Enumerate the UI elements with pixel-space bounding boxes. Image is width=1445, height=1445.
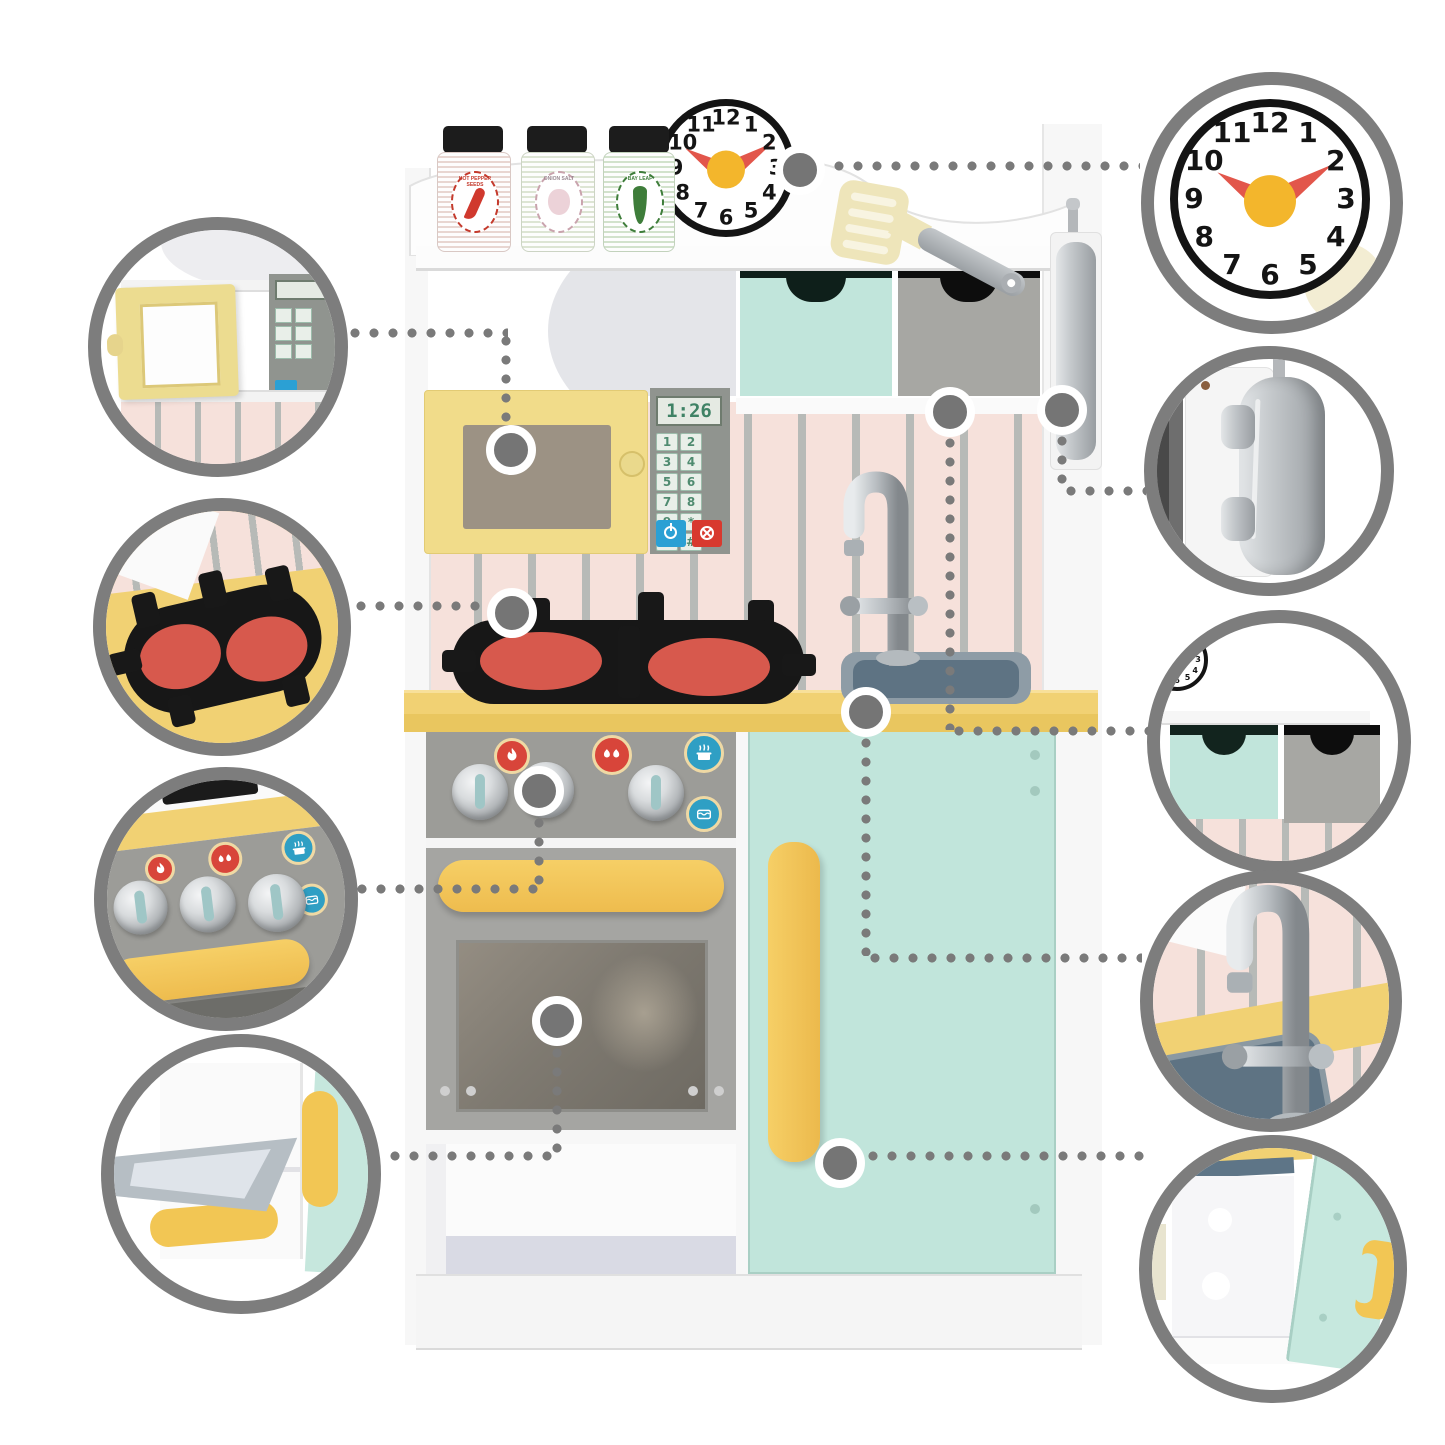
burner-left bbox=[480, 632, 602, 690]
fridge-handle-sliver bbox=[302, 1091, 338, 1207]
callout-play-clock: 121234567891011 bbox=[1141, 72, 1403, 334]
microwave-key-4: 4 bbox=[680, 453, 702, 471]
connector-microwave-h bbox=[350, 328, 508, 338]
connector-node-knobs bbox=[514, 766, 564, 816]
oven-screw bbox=[440, 1086, 450, 1096]
microwave-key-8: 8 bbox=[680, 493, 702, 511]
shelf-board bbox=[426, 1130, 736, 1144]
drawer-cutout-handle bbox=[786, 276, 846, 302]
grate-prong bbox=[130, 591, 161, 630]
connector-oven-h bbox=[390, 1151, 556, 1161]
grate-center-bar bbox=[618, 626, 640, 698]
fridge-hinge bbox=[1030, 786, 1040, 796]
spatula-slot bbox=[845, 223, 892, 239]
callout-sink-and-faucet bbox=[1140, 870, 1402, 1132]
base-kick-plate bbox=[416, 1274, 1082, 1350]
oven-gap bbox=[426, 838, 736, 848]
microwave-display: 1:26 bbox=[656, 396, 722, 426]
clock-numeral-3: 3 bbox=[1336, 185, 1355, 213]
clock-pivot bbox=[1170, 653, 1185, 668]
microwave-key-6: 6 bbox=[680, 473, 702, 491]
clock-numeral-2: 2 bbox=[1192, 646, 1198, 654]
connector-node-burners bbox=[487, 588, 537, 638]
steam-pot-icon bbox=[684, 733, 724, 773]
connector-node-oven bbox=[532, 996, 582, 1046]
callout-content bbox=[114, 1047, 368, 1301]
clock-numeral-5: 5 bbox=[744, 201, 759, 222]
phone-handset bbox=[1239, 377, 1325, 575]
connector-burners bbox=[356, 601, 502, 611]
clock-numeral-10: 10 bbox=[1185, 147, 1224, 175]
grate-prong bbox=[782, 654, 816, 676]
callout-content bbox=[101, 230, 335, 464]
fridge-door-mint bbox=[748, 722, 1056, 1274]
callout-control-knobs bbox=[94, 767, 358, 1031]
clock-numeral-1: 1 bbox=[1185, 638, 1191, 646]
clock-numeral-4: 4 bbox=[1192, 667, 1198, 675]
chili-pepper-icon bbox=[464, 186, 487, 221]
callout-storage-drawers: 121234567891011 bbox=[1147, 610, 1411, 874]
open-microwave-door bbox=[115, 284, 239, 400]
connector-knobs-v bbox=[534, 818, 544, 890]
callout-content: 121234567891011 bbox=[1160, 623, 1398, 861]
stove-knob-1 bbox=[452, 764, 508, 820]
clock-numeral-2: 2 bbox=[762, 133, 777, 154]
callout-content bbox=[1152, 1148, 1394, 1390]
clock-numeral-11: 11 bbox=[1213, 119, 1252, 147]
power-button bbox=[656, 520, 686, 547]
connector-knobs-h bbox=[357, 884, 539, 894]
callout-content bbox=[107, 780, 345, 1018]
key bbox=[295, 308, 312, 323]
connector-clock bbox=[834, 161, 1140, 171]
clock-numeral-5: 5 bbox=[1298, 251, 1317, 279]
connector-node-drawers bbox=[925, 387, 975, 437]
hutch-board bbox=[736, 398, 1082, 414]
lower-open-shelf bbox=[426, 1144, 736, 1288]
clock-numeral-4: 4 bbox=[762, 183, 777, 204]
callout-content bbox=[1153, 883, 1389, 1119]
power-icon-bar bbox=[670, 523, 672, 531]
handset-earpiece bbox=[1221, 405, 1255, 449]
boiling-pot-icon bbox=[686, 796, 722, 832]
jar-body: ONION SALT bbox=[521, 152, 595, 252]
clock-numeral-10: 10 bbox=[1160, 646, 1164, 654]
product-feature-diagram: 121234567891011 HOT PEPPER SEEDS ONION S… bbox=[0, 0, 1445, 1445]
cabinet-divider bbox=[736, 714, 748, 1274]
microwave-key-3: 3 bbox=[656, 453, 678, 471]
clock-numeral-4: 4 bbox=[1326, 223, 1345, 251]
microwave-door bbox=[424, 390, 648, 554]
oven-window bbox=[456, 940, 708, 1112]
microwave-key-1: 1 bbox=[656, 433, 678, 451]
spatula-slot bbox=[842, 239, 889, 255]
key bbox=[275, 344, 292, 359]
drawer-cutout-handle bbox=[1310, 733, 1354, 755]
microwave-panel: 1:26 123456789*0# bbox=[650, 388, 730, 554]
open-cabinet-door bbox=[1286, 1151, 1394, 1373]
key bbox=[295, 344, 312, 359]
clock-numeral-1: 1 bbox=[1298, 119, 1317, 147]
connector-node-microwave bbox=[486, 425, 536, 475]
spatula-slot bbox=[848, 208, 895, 224]
faucet-closeup bbox=[1219, 883, 1337, 1119]
side-sliver bbox=[1152, 1224, 1166, 1300]
drawer-mint-open bbox=[1170, 725, 1278, 819]
microwave-key-2: 2 bbox=[680, 433, 702, 451]
callout-content: 121234567891011 bbox=[1154, 85, 1390, 321]
connector-phone-v bbox=[1057, 436, 1067, 490]
connector-drawers-v bbox=[945, 438, 955, 730]
microwave-window bbox=[463, 425, 611, 529]
clock-numeral-5: 5 bbox=[1185, 674, 1191, 682]
garlic-icon bbox=[548, 189, 570, 215]
door-screw bbox=[1319, 1313, 1328, 1322]
clock-numeral-6: 6 bbox=[719, 208, 734, 229]
clock-numeral-12: 12 bbox=[1251, 109, 1290, 137]
mount-screw bbox=[1201, 381, 1210, 390]
oven-screw bbox=[714, 1086, 724, 1096]
oven-screw bbox=[466, 1086, 476, 1096]
phone-antenna-tip bbox=[1066, 198, 1080, 210]
microwave-display bbox=[275, 280, 327, 300]
jar-body: BAY LEAF bbox=[603, 152, 675, 252]
spatula-slot bbox=[850, 192, 897, 208]
door-handle bbox=[1354, 1239, 1394, 1321]
clock-numeral-6: 6 bbox=[1260, 261, 1279, 289]
callout-cabinet-door-open bbox=[1139, 1135, 1407, 1403]
key bbox=[295, 326, 312, 341]
microwave-key-5: 5 bbox=[656, 473, 678, 491]
cabinet-interior bbox=[1172, 1176, 1294, 1338]
backsplash-sliver bbox=[1160, 819, 1398, 861]
handset-mouthpiece bbox=[1221, 497, 1255, 541]
connector-oven-v bbox=[552, 1048, 562, 1154]
drawer-mint bbox=[740, 266, 892, 396]
drawer-cutout-handle bbox=[1202, 733, 1246, 755]
burner-left bbox=[133, 616, 227, 697]
clock-numeral-6: 6 bbox=[1174, 677, 1180, 685]
clock-numeral-7: 7 bbox=[1164, 674, 1170, 682]
microwave-knob bbox=[619, 451, 645, 477]
double-flame-icon bbox=[592, 735, 632, 775]
jar-emblem: BAY LEAF bbox=[616, 171, 664, 233]
clock-numeral-9: 9 bbox=[1184, 185, 1203, 213]
grate-prong bbox=[442, 650, 476, 672]
burner-right bbox=[648, 638, 770, 696]
jar-cap bbox=[609, 126, 669, 153]
connector-drawers-h bbox=[954, 726, 1150, 736]
callout-content bbox=[1157, 359, 1381, 583]
play-clock-closeup: 121234567891011 bbox=[1170, 99, 1370, 299]
bay-leaf-icon bbox=[633, 186, 647, 224]
handle-cutout bbox=[1354, 1252, 1379, 1304]
callout-content bbox=[106, 511, 338, 743]
door-knob bbox=[107, 334, 124, 357]
jar-emblem: HOT PEPPER SEEDS bbox=[451, 171, 499, 233]
door-window bbox=[140, 302, 221, 389]
fridge-hinge bbox=[1030, 750, 1040, 760]
connector-sink-h bbox=[870, 953, 1142, 963]
fridge-handle bbox=[768, 842, 820, 1162]
control-panel bbox=[426, 732, 736, 838]
jar-label: HOT PEPPER SEEDS bbox=[453, 176, 497, 188]
key bbox=[275, 308, 292, 323]
clock-numeral-8: 8 bbox=[675, 183, 690, 204]
toy-faucet bbox=[838, 470, 930, 666]
jar-label: BAY LEAF bbox=[618, 176, 662, 182]
stove-knob-3 bbox=[628, 765, 684, 821]
shelf-side bbox=[426, 1144, 446, 1288]
clock-pivot bbox=[1244, 175, 1296, 227]
jar-cap bbox=[527, 126, 587, 153]
interior-hole bbox=[1202, 1272, 1230, 1300]
callout-toy-phone bbox=[1144, 346, 1394, 596]
connector-sink-v bbox=[861, 738, 871, 956]
jar-cap bbox=[443, 126, 503, 153]
drawer-grey-open bbox=[1284, 725, 1380, 823]
clock-pivot bbox=[707, 151, 745, 189]
door-screw bbox=[1333, 1212, 1342, 1221]
clock-numeral-11: 11 bbox=[686, 114, 715, 135]
fridge-hinge bbox=[1030, 1204, 1040, 1214]
connector-phone-h bbox=[1066, 486, 1146, 496]
callout-oven-door-open bbox=[101, 1034, 381, 1314]
connector-node-sink bbox=[841, 687, 891, 737]
jar-label: ONION SALT bbox=[537, 176, 581, 182]
clock-numeral-8: 8 bbox=[1160, 667, 1162, 675]
clock-partial: 121234567891011 bbox=[1160, 629, 1208, 691]
grate-prong bbox=[281, 673, 311, 708]
connector-cabinet bbox=[868, 1151, 1148, 1161]
clock-numeral-11: 11 bbox=[1161, 638, 1172, 646]
jar-emblem: ONION SALT bbox=[535, 171, 583, 233]
clock-numeral-12: 12 bbox=[1171, 635, 1182, 643]
panel-closeup-group bbox=[107, 780, 345, 1018]
interior-hole bbox=[1208, 1208, 1232, 1232]
backsplash-sliver bbox=[121, 402, 335, 464]
cancel-button bbox=[692, 520, 722, 547]
shelf-shadow-oval bbox=[548, 268, 736, 396]
callout-microwave-door-open bbox=[88, 217, 348, 477]
toy-microwave: 1:26 123456789*0# bbox=[424, 386, 730, 556]
connector-node-cabinet bbox=[815, 1138, 865, 1188]
cabinet-interior-dark bbox=[1157, 415, 1169, 535]
oven-screw bbox=[688, 1086, 698, 1096]
clock-numeral-7: 7 bbox=[694, 201, 709, 222]
clock-numeral-2: 2 bbox=[1326, 147, 1345, 175]
key bbox=[275, 326, 292, 341]
oven-window-reflection bbox=[589, 953, 699, 1073]
microwave-key-7: 7 bbox=[656, 493, 678, 511]
callout-stove-burners bbox=[93, 498, 351, 756]
clock-numeral-7: 7 bbox=[1222, 251, 1241, 279]
jar-body: HOT PEPPER SEEDS bbox=[437, 152, 511, 252]
shelf-board bbox=[1160, 711, 1370, 725]
clock-numeral-12: 12 bbox=[711, 108, 740, 129]
clock-numeral-8: 8 bbox=[1194, 223, 1213, 251]
clock-numeral-3: 3 bbox=[1195, 656, 1201, 664]
clock-numeral-1: 1 bbox=[744, 114, 759, 135]
connector-node-clock bbox=[775, 145, 825, 195]
flame-icon bbox=[494, 738, 530, 774]
connector-node-phone bbox=[1037, 385, 1087, 435]
